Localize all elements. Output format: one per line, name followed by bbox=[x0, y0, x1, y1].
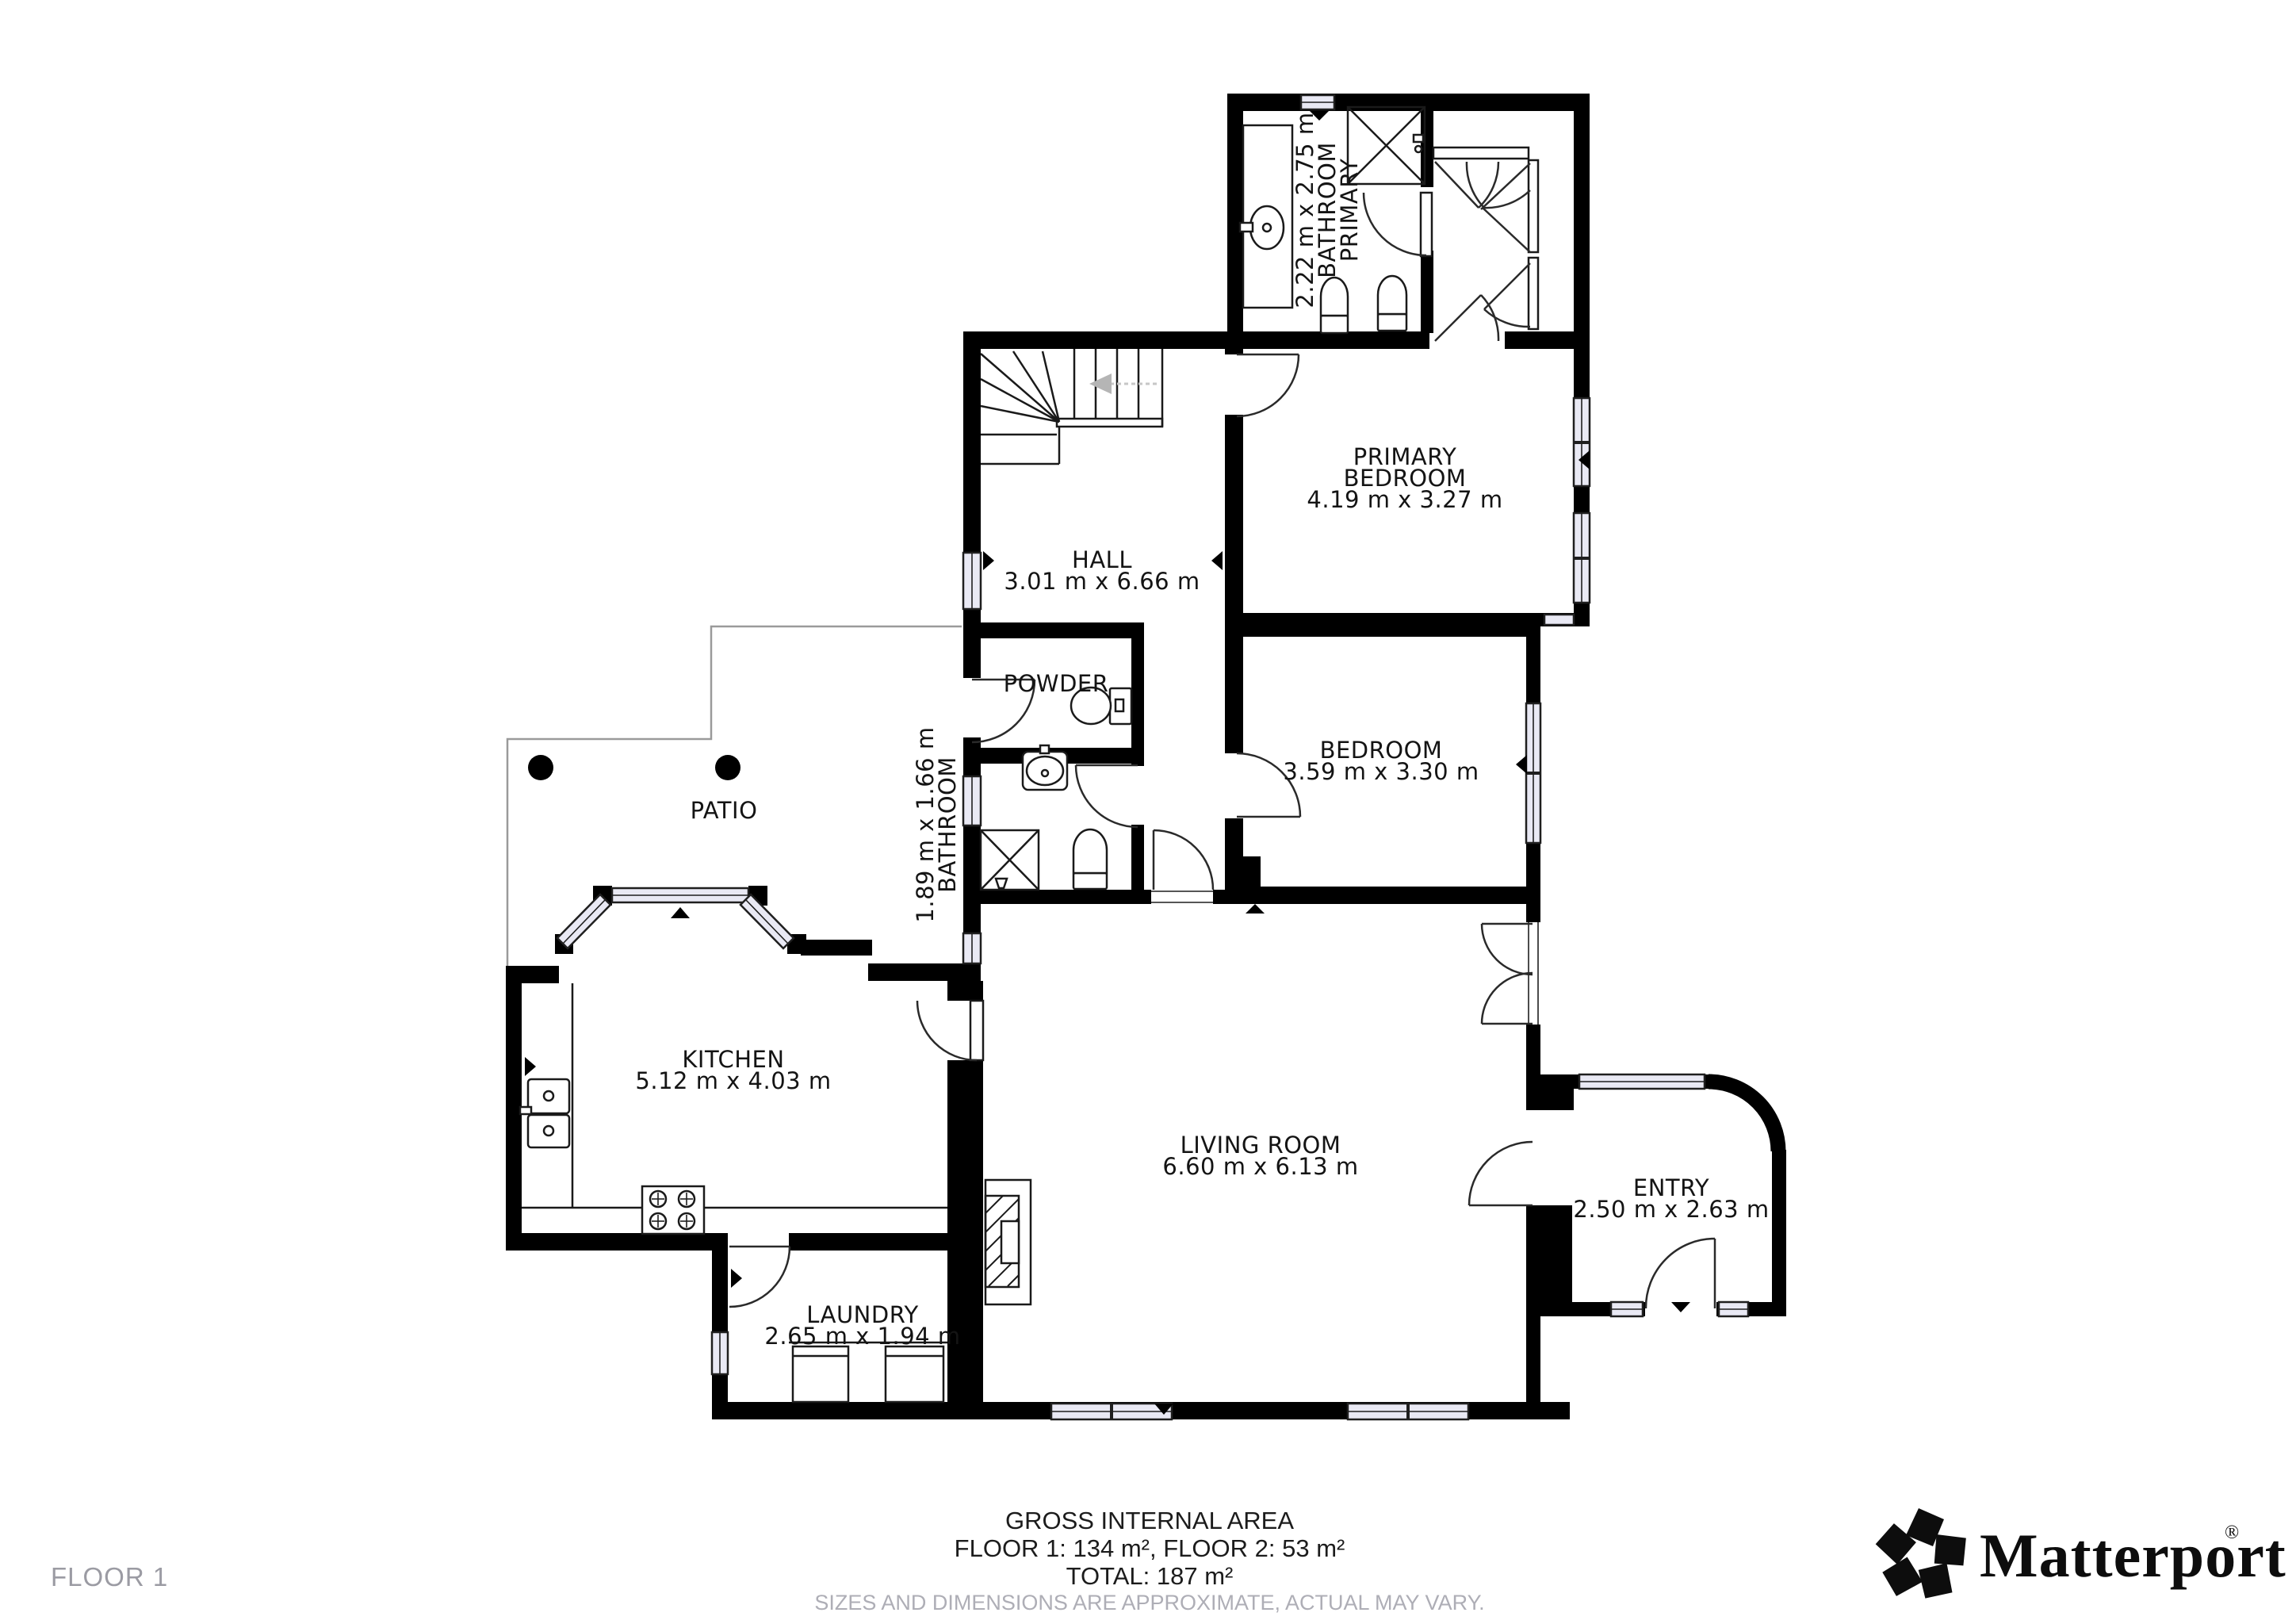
window-hall-patio bbox=[963, 933, 981, 963]
window-bathroom-west bbox=[963, 776, 981, 825]
stairs bbox=[981, 349, 1162, 464]
living-room-dims: 6.60 m x 6.13 m bbox=[1162, 1153, 1358, 1180]
window-entry-south-2 bbox=[1719, 1302, 1748, 1316]
footer: GROSS INTERNAL AREA FLOOR 1: 134 m², FLO… bbox=[51, 1507, 1485, 1614]
footer-areas: FLOOR 1: 134 m², FLOOR 2: 53 m² bbox=[955, 1534, 1345, 1562]
window-primary-bedroom-1 bbox=[1574, 398, 1590, 486]
room-labels: PRIMARY BATHROOM 2.22 m x 2.75 m PRIMARY… bbox=[635, 112, 1769, 1350]
door-living-french bbox=[1482, 922, 1540, 1025]
laundry-dims: 2.65 m x 1.94 m bbox=[764, 1323, 960, 1350]
matterport-icon bbox=[1872, 1508, 1974, 1607]
brand-logo: Matterport ® bbox=[1872, 1508, 2286, 1607]
door-primary-bath-closet bbox=[1364, 193, 1432, 256]
door-primary-bedroom bbox=[1237, 354, 1299, 416]
room-label-bathroom: BATHROOM 1.89 m x 1.66 m bbox=[912, 726, 961, 922]
room-label-hall: HALL 3.01 m x 6.66 m bbox=[1004, 546, 1200, 595]
closet-shelf bbox=[1433, 147, 1529, 159]
window-entry-north bbox=[1579, 1074, 1705, 1089]
patio-column-1 bbox=[528, 755, 553, 780]
registered-mark: ® bbox=[2225, 1522, 2239, 1543]
window-bedroom-east bbox=[1526, 703, 1540, 843]
door-hall-living bbox=[1151, 830, 1213, 904]
bath-shower-icon bbox=[981, 830, 1039, 890]
kitchen-sink-icon bbox=[520, 1079, 569, 1147]
patio-name: PATIO bbox=[691, 797, 758, 824]
footer-title: GROSS INTERNAL AREA bbox=[1005, 1507, 1294, 1534]
room-label-entry: ENTRY 2.50 m x 2.63 m bbox=[1573, 1174, 1769, 1223]
primary-bathroom-dims: 2.22 m x 2.75 m bbox=[1291, 112, 1318, 308]
window-hall-west bbox=[963, 553, 981, 609]
window-primary-bedroom-2 bbox=[1574, 513, 1590, 603]
window-laundry-west bbox=[712, 1332, 728, 1374]
window-primary-bathroom-top bbox=[1301, 95, 1334, 109]
footer-total: TOTAL: 187 m² bbox=[1066, 1562, 1234, 1590]
kitchen-counter bbox=[522, 983, 947, 1208]
bathroom-dims: 1.89 m x 1.66 m bbox=[912, 726, 939, 922]
vanity-icon bbox=[1240, 125, 1292, 308]
stairs-up-arrow-icon bbox=[1089, 373, 1158, 394]
door-entry-front bbox=[1646, 1239, 1715, 1308]
kitchen-dims: 5.12 m x 4.03 m bbox=[635, 1067, 831, 1094]
room-label-primary-bathroom: PRIMARY BATHROOM 2.22 m x 2.75 m bbox=[1291, 112, 1363, 308]
toilet-icon bbox=[1321, 278, 1348, 333]
stove-icon bbox=[642, 1186, 704, 1234]
window-entry-south-1 bbox=[1611, 1302, 1643, 1316]
patio-outline bbox=[507, 626, 962, 966]
room-label-primary-bedroom: PRIMARY BEDROOM 4.19 m x 3.27 m bbox=[1307, 443, 1502, 513]
entry-curved-wall bbox=[1709, 1082, 1778, 1151]
entry-dims: 2.50 m x 2.63 m bbox=[1573, 1196, 1769, 1223]
floorplan-page: PRIMARY BATHROOM 2.22 m x 2.75 m PRIMARY… bbox=[0, 0, 2296, 1624]
bidet-icon bbox=[1378, 276, 1406, 331]
room-label-kitchen: KITCHEN 5.12 m x 4.03 m bbox=[635, 1046, 831, 1094]
bath-toilet-icon bbox=[1073, 829, 1107, 889]
window-step bbox=[1544, 615, 1574, 625]
washer-dryer-icon bbox=[789, 1342, 947, 1402]
door-kitchen-living bbox=[917, 1001, 983, 1060]
window-bay-center bbox=[612, 888, 748, 902]
room-label-laundry: LAUNDRY 2.65 m x 1.94 m bbox=[764, 1301, 960, 1350]
floor-label: FLOOR 1 bbox=[51, 1562, 168, 1591]
door-living-entry bbox=[1469, 1142, 1533, 1205]
window-living-south-1 bbox=[1051, 1404, 1172, 1419]
primary-bedroom-dims: 4.19 m x 3.27 m bbox=[1307, 486, 1502, 513]
room-label-bedroom: BEDROOM 3.59 m x 3.30 m bbox=[1283, 737, 1479, 785]
window-bay-left bbox=[557, 894, 610, 948]
window-living-south-2 bbox=[1348, 1404, 1468, 1419]
bath-sink-icon bbox=[1023, 745, 1067, 790]
closet-doors bbox=[1435, 160, 1538, 329]
patio-column-2 bbox=[715, 755, 740, 780]
door-bathroom bbox=[1076, 765, 1138, 827]
footer-disclaimer: SIZES AND DIMENSIONS ARE APPROXIMATE, AC… bbox=[814, 1591, 1484, 1614]
fireplace-icon bbox=[985, 1180, 1031, 1304]
hall-dims: 3.01 m x 6.66 m bbox=[1004, 568, 1200, 595]
room-label-living-room: LIVING ROOM 6.60 m x 6.13 m bbox=[1162, 1132, 1358, 1180]
floorplan-canvas: PRIMARY BATHROOM 2.22 m x 2.75 m PRIMARY… bbox=[0, 0, 2296, 1624]
bedroom-dims: 3.59 m x 3.30 m bbox=[1283, 758, 1479, 785]
door-closet-from-bedroom bbox=[1435, 295, 1498, 341]
powder-name: POWDER bbox=[1004, 670, 1109, 697]
matterport-wordmark: Matterport bbox=[1980, 1521, 2286, 1590]
